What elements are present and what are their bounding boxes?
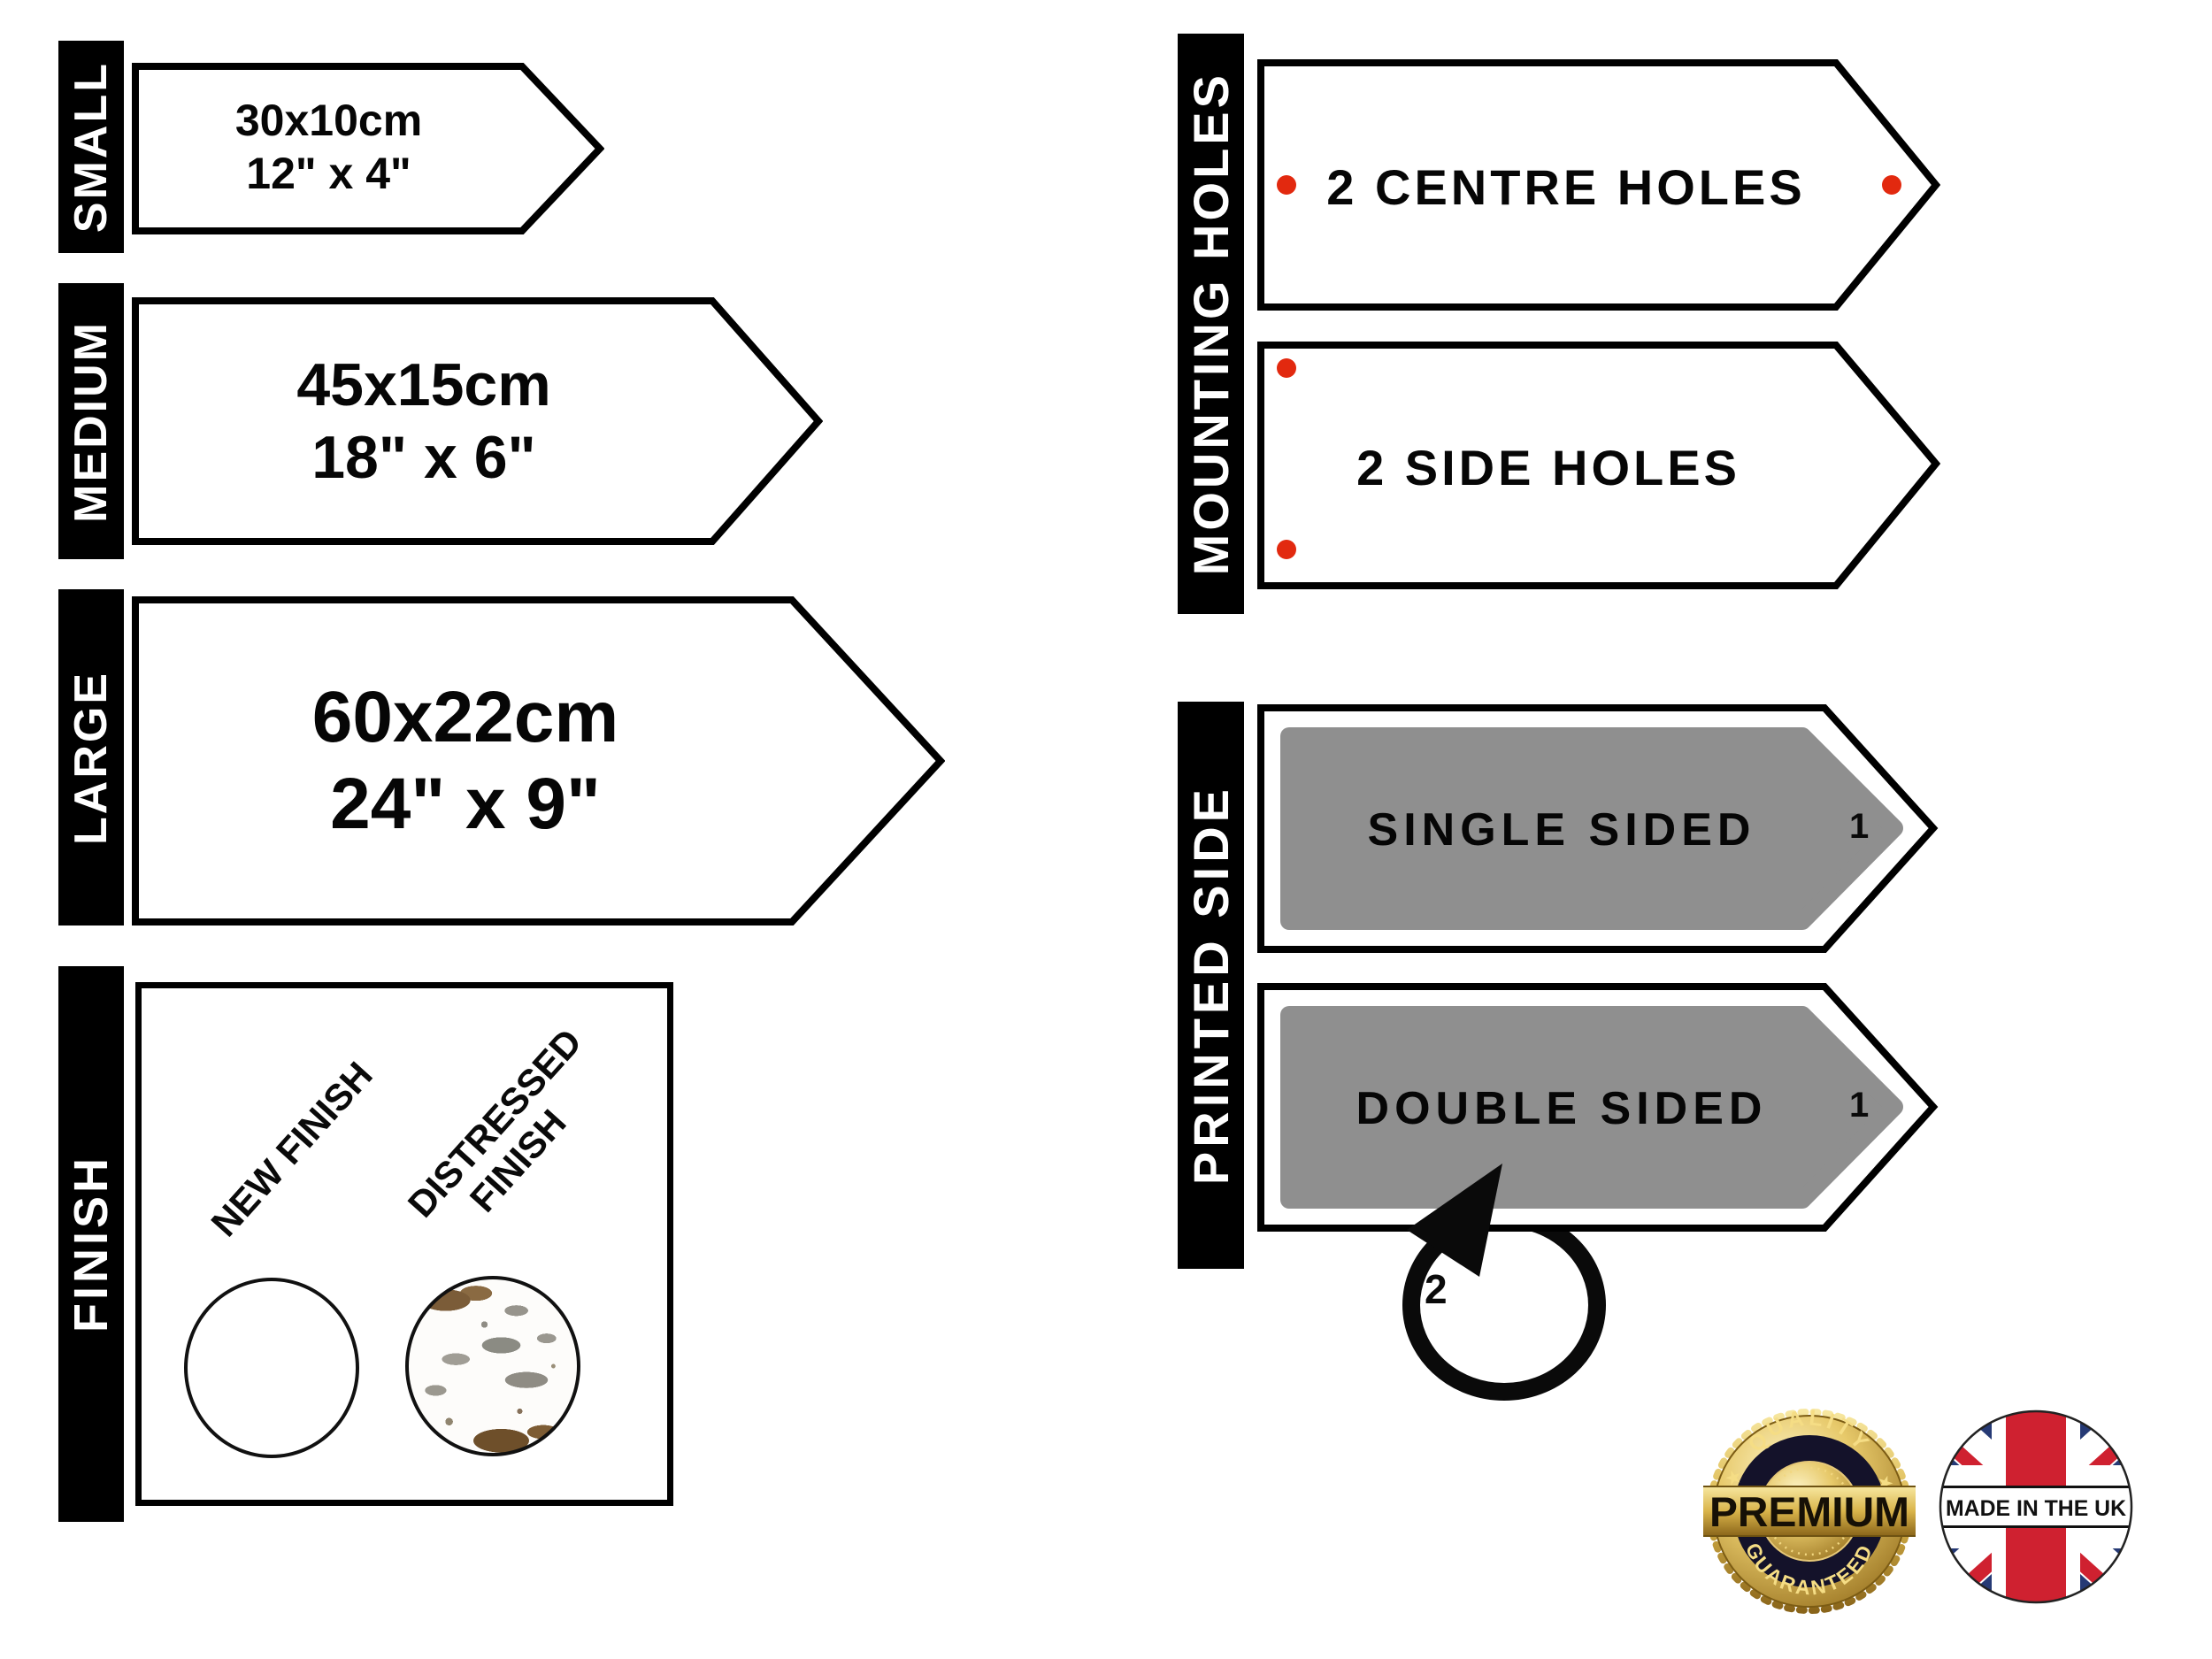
premium-badge-center-text: PREMIUM	[1709, 1488, 1909, 1535]
finish-label-text: FINISH	[64, 1155, 119, 1333]
medium-size-text: 45x15cm 18" x 6"	[135, 349, 712, 494]
distressed-finish-swatch	[405, 1276, 580, 1456]
medium-metric: 45x15cm	[135, 349, 712, 421]
single-sided-text: SINGLE SIDED	[1332, 803, 1792, 857]
premium-quality-badge: QUALITY ★ ★ GUARANTEED PREMIUM	[1703, 1405, 1916, 1617]
size-label-small-text: SMALL	[65, 61, 118, 233]
flip-arrow-head-icon	[1398, 1146, 1548, 1296]
side-holes-text: 2 SIDE HOLES	[1283, 438, 1814, 497]
large-size-text: 60x22cm 24" x 9"	[135, 674, 795, 848]
double-sided-text: DOUBLE SIDED	[1332, 1081, 1792, 1136]
small-size-text: 30x10cm 12" x 4"	[135, 94, 522, 200]
size-label-large-text: LARGE	[65, 671, 118, 845]
finish-label: FINISH	[58, 966, 124, 1522]
hole-dot-left	[1277, 175, 1296, 195]
made-in-uk-text: MADE IN THE UK	[1946, 1496, 2126, 1521]
mounting-holes-label-text: MOUNTING HOLES	[1182, 72, 1240, 575]
small-imperial: 12" x 4"	[135, 147, 522, 200]
mounting-holes-label: MOUNTING HOLES	[1178, 34, 1244, 614]
medium-imperial: 18" x 6"	[135, 421, 712, 494]
size-label-large: LARGE	[58, 589, 124, 926]
size-label-medium-text: MEDIUM	[65, 320, 118, 523]
hole-dot-top-left	[1277, 358, 1296, 378]
new-finish-swatch	[184, 1278, 359, 1458]
large-metric: 60x22cm	[135, 674, 795, 761]
flip-back-number: 2	[1425, 1265, 1448, 1313]
made-in-uk-badge: MADE IN THE UK	[1938, 1409, 2134, 1605]
small-metric: 30x10cm	[135, 94, 522, 147]
double-sided-front-number: 1	[1849, 1086, 1869, 1125]
product-options-infographic: SMALL 30x10cm 12" x 4" MEDIUM 45x15cm 18…	[0, 0, 2212, 1659]
centre-holes-text: 2 CENTRE HOLES	[1318, 157, 1814, 217]
single-sided-front-number: 1	[1849, 807, 1869, 847]
size-label-medium: MEDIUM	[58, 283, 124, 559]
printed-side-label-text: PRINTED SIDE	[1182, 785, 1240, 1185]
printed-side-label: PRINTED SIDE	[1178, 702, 1244, 1269]
hole-dot-right	[1882, 175, 1901, 195]
large-imperial: 24" x 9"	[135, 761, 795, 848]
hole-dot-bottom-left	[1277, 540, 1296, 559]
size-label-small: SMALL	[58, 41, 124, 253]
